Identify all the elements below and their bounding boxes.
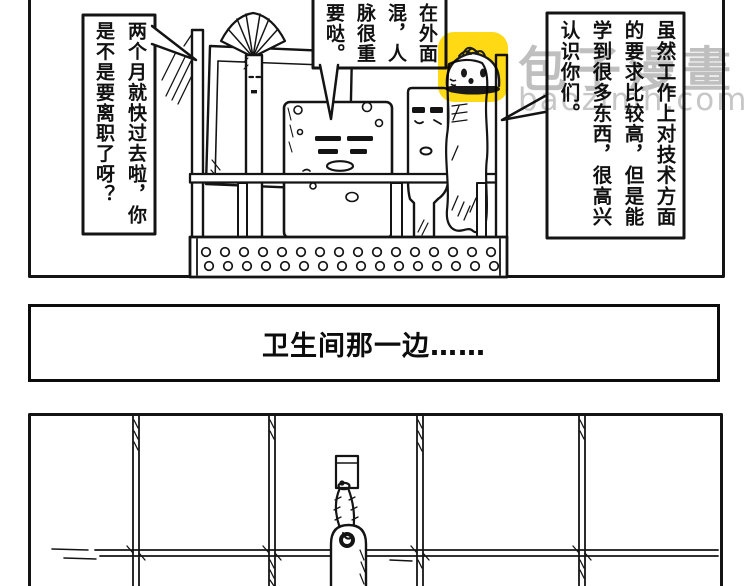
narration-panel: 卫生间那一边…… bbox=[28, 304, 720, 382]
shelf-right-post bbox=[496, 55, 507, 238]
speech-bubble-left-text: 两个月就快过去啦，你是不是要离职了呀？ bbox=[86, 21, 152, 228]
tile-grout-lines bbox=[52, 416, 718, 586]
shelf-tray bbox=[190, 237, 507, 277]
soap-character bbox=[284, 102, 392, 238]
speech-bubble-right-text: 虽然工作上对技术方面的要求比较高，但是能学到很多东西，很高兴认识你们。 bbox=[551, 20, 680, 231]
comic-page: 两个月就快过去啦，你是不是要离职了呀？ 在外面混，人脉很重要哒。 虽然工作上对技… bbox=[0, 0, 750, 586]
soap-mouth bbox=[327, 161, 353, 171]
shelf-left-post bbox=[192, 30, 203, 238]
key-tag bbox=[331, 525, 366, 586]
speech-bubble-middle-text: 在外面混，人脉很重要哒。 bbox=[317, 3, 442, 66]
toothpaste-character bbox=[408, 88, 448, 237]
narration-caption: 卫生间那一边…… bbox=[262, 324, 486, 363]
